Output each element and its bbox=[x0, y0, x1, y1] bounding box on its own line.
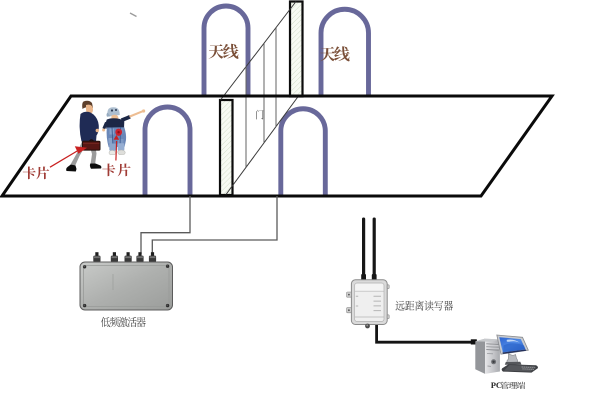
svg-text:PC: PC bbox=[491, 380, 502, 390]
